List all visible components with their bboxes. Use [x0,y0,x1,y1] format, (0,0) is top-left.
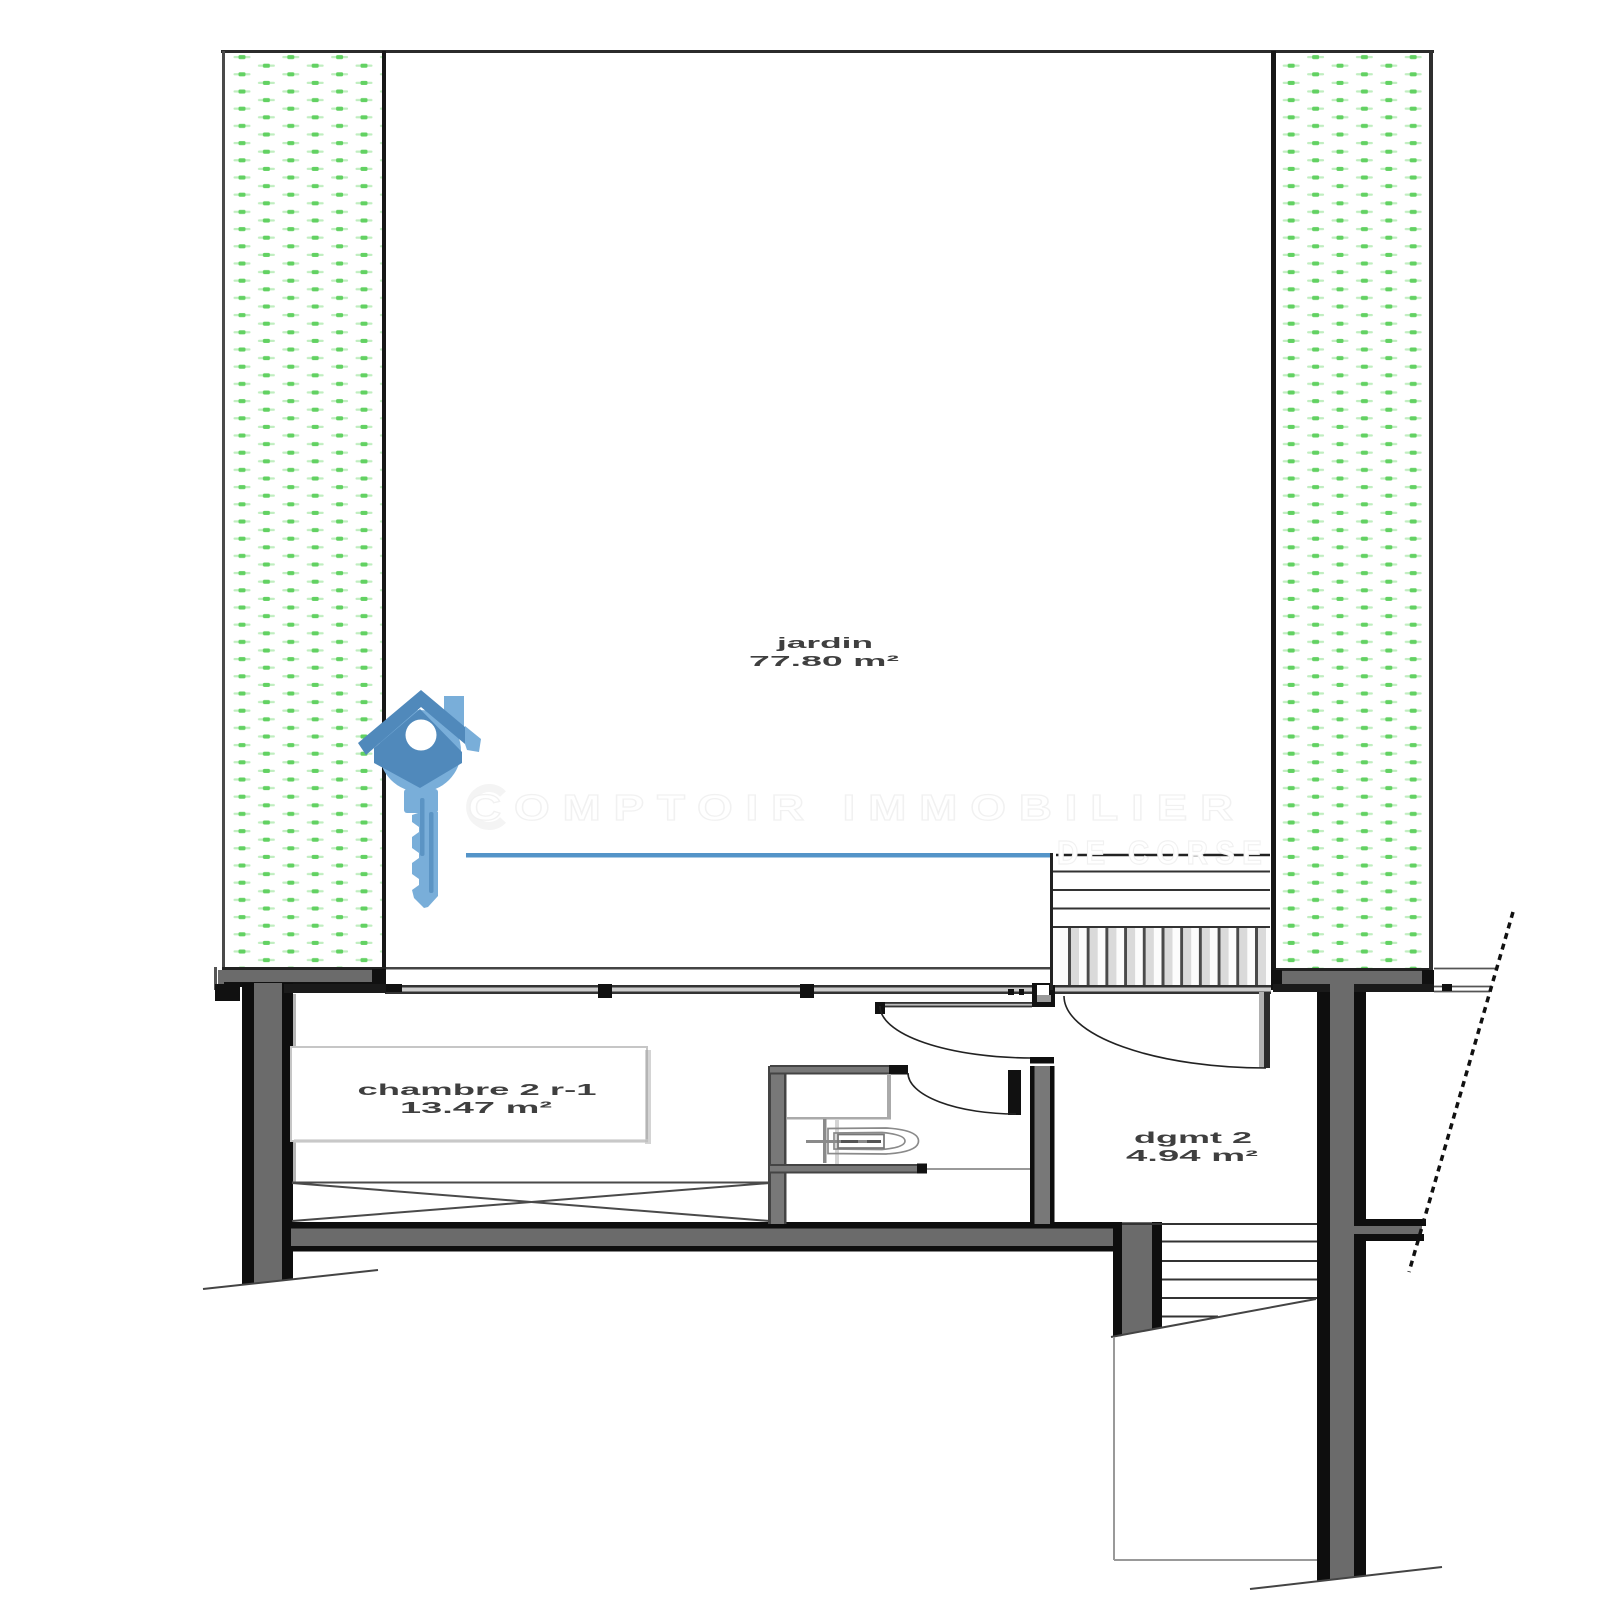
svg-text:DE CORSE: DE CORSE [1057,834,1269,871]
svg-text:jardin: jardin [775,635,873,652]
svg-text:COMPTOIR IMMOBILIER: COMPTOIR IMMOBILIER [468,787,1246,828]
svg-text:dgmt 2: dgmt 2 [1134,1130,1252,1147]
svg-text:4.94 m²: 4.94 m² [1126,1148,1258,1165]
svg-text:chambre 2 r-1: chambre 2 r-1 [358,1082,597,1099]
svg-text:77.80 m²: 77.80 m² [749,653,899,670]
svg-text:13.47 m²: 13.47 m² [400,1100,552,1117]
